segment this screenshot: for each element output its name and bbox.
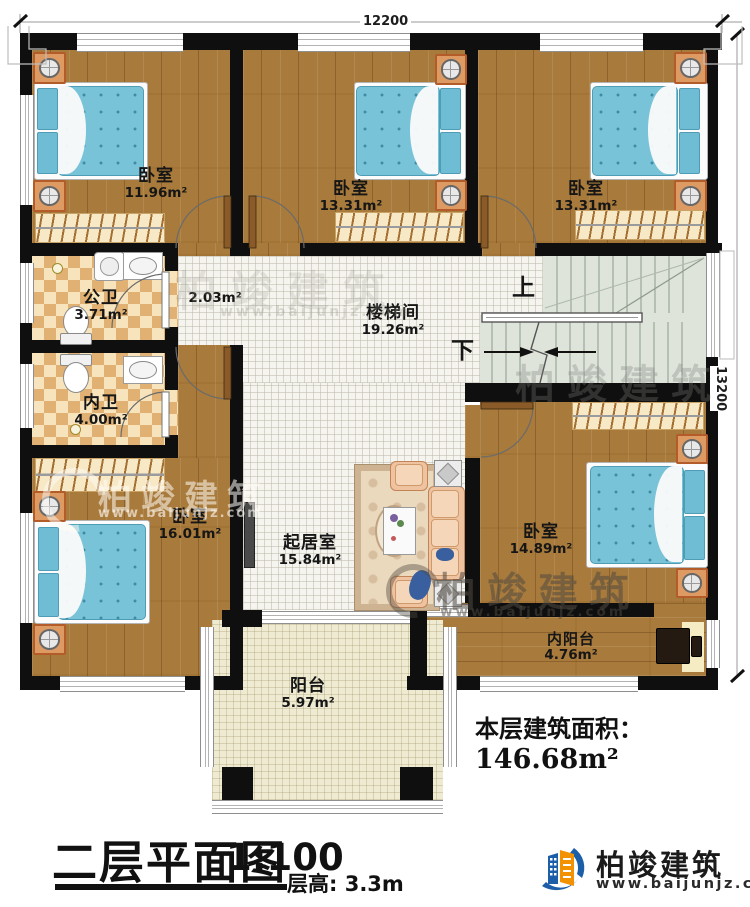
balcony-railing-left <box>200 627 214 767</box>
floor-drain <box>70 424 81 435</box>
brand-url: www.baijunjz.com <box>596 876 750 892</box>
wall-stairs-bottom <box>465 383 722 402</box>
floor-drain <box>52 263 63 274</box>
wall-segment <box>165 353 178 390</box>
nightstand <box>33 52 66 84</box>
toilet-tank <box>60 333 92 345</box>
nightstand <box>33 624 66 655</box>
nightstand <box>676 434 708 464</box>
sofa-cushion <box>431 490 459 518</box>
wall-bedrooms-divider-1 <box>230 50 243 243</box>
coffee-table <box>383 507 416 555</box>
wardrobe <box>572 402 704 430</box>
wall-segment <box>165 256 178 271</box>
bed-pillow <box>440 88 461 130</box>
floor-stairs-upper <box>543 256 706 315</box>
wall-bath-divider <box>32 340 178 353</box>
floor-patch <box>165 390 178 435</box>
window <box>20 364 34 428</box>
nightstand <box>674 52 707 84</box>
floor-vestibule <box>178 345 230 458</box>
lamp-icon <box>441 185 462 205</box>
wall-balcony-stub-right <box>410 610 427 676</box>
dimension-top: 12200 <box>360 14 411 29</box>
wall-bedroom-br-left <box>465 458 480 603</box>
bed-pillow <box>38 573 59 617</box>
floor-height: 层高: 3.3m <box>287 868 404 898</box>
total-area-line: 本层建筑面积：146.68m² <box>475 709 750 775</box>
flower-decor <box>397 520 404 527</box>
wall-segment <box>300 243 482 256</box>
lamp-icon <box>680 58 701 79</box>
lamp-icon <box>682 439 703 459</box>
wardrobe <box>35 213 165 243</box>
nightstand <box>676 568 708 598</box>
wardrobe <box>575 210 705 240</box>
lamp-icon <box>39 496 60 516</box>
balcony-railing-bottom <box>212 800 443 814</box>
lamp-icon <box>39 186 60 207</box>
lamp-icon <box>39 58 60 79</box>
bed-pillow <box>440 132 461 174</box>
floor-patch <box>250 243 300 256</box>
bed-pillow <box>37 132 58 174</box>
wall-segment <box>535 243 722 256</box>
nightstand <box>674 180 707 212</box>
person-figure <box>436 548 454 561</box>
floor-patch <box>165 271 178 327</box>
sink-basin <box>129 361 158 379</box>
bed-pillow <box>37 88 58 130</box>
floor-stairs-lower <box>480 315 706 383</box>
tv <box>244 502 255 568</box>
wardrobe <box>35 458 165 492</box>
balcony-pillar <box>222 767 253 800</box>
window <box>20 513 34 623</box>
bed-pillow <box>679 88 700 130</box>
floor-patch <box>465 405 480 458</box>
stairs-down-label: 下 <box>451 331 474 365</box>
nightstand <box>33 491 66 522</box>
sofa-cushion <box>431 519 459 547</box>
bed-pillow <box>679 132 700 174</box>
sink-basin <box>129 257 158 275</box>
total-area-label: 本层建筑面积： <box>475 715 643 743</box>
balcony-pillar <box>400 767 433 800</box>
sink <box>123 252 163 280</box>
wall-balcony-stub-left <box>222 610 262 627</box>
window-stairs <box>706 253 720 357</box>
window <box>706 620 720 668</box>
bed-pillow <box>38 527 59 571</box>
bed-pillow <box>684 470 705 514</box>
washing-machine <box>94 252 125 281</box>
bed-pillow <box>684 516 705 560</box>
lamp-icon <box>39 629 60 649</box>
floor-patch <box>178 243 230 256</box>
stairs-up-label: 上 <box>512 268 535 302</box>
window <box>20 263 34 323</box>
wall-segment <box>165 327 178 353</box>
window <box>20 95 34 205</box>
toilet <box>63 362 89 393</box>
lamp-icon <box>682 573 703 593</box>
floor-patch <box>482 243 535 256</box>
flower-decor <box>391 536 396 541</box>
nightstand <box>435 180 467 211</box>
side-table-top <box>437 582 460 605</box>
piano <box>656 628 690 664</box>
window <box>540 33 643 52</box>
wall-segment <box>638 676 718 690</box>
window <box>60 676 185 692</box>
wall-segment <box>165 435 178 458</box>
title-underline <box>55 884 287 890</box>
wall-segment <box>185 676 243 690</box>
nightstand <box>33 180 66 212</box>
side-table-top <box>437 462 460 485</box>
wall-bath-bottom <box>32 445 178 458</box>
sliding-door-balcony <box>262 611 410 624</box>
sink <box>123 356 163 384</box>
wall-segment <box>230 243 250 256</box>
side-table <box>434 460 462 487</box>
lamp-icon <box>680 186 701 207</box>
balcony-railing-right <box>443 627 457 767</box>
floor-plan-sheet: 卧室 11.96m² 卧室 13.31m² 卧室 13.31m² 公卫 3.71… <box>0 0 750 907</box>
side-table <box>434 580 462 607</box>
dimension-right: 13200 <box>710 366 731 411</box>
window <box>77 33 183 52</box>
window <box>480 676 638 692</box>
total-area-value: 146.68m² <box>475 744 619 775</box>
lamp-icon <box>441 59 462 79</box>
piano-stool <box>691 636 702 657</box>
wardrobe <box>335 212 464 242</box>
window <box>298 33 410 52</box>
wall-inner-balcony-divider <box>468 603 654 617</box>
wall-segment <box>20 676 60 690</box>
washer-drum <box>100 257 119 275</box>
brand-logo-icon <box>536 838 592 896</box>
nightstand <box>435 54 467 85</box>
armchair-cushion <box>395 464 423 486</box>
